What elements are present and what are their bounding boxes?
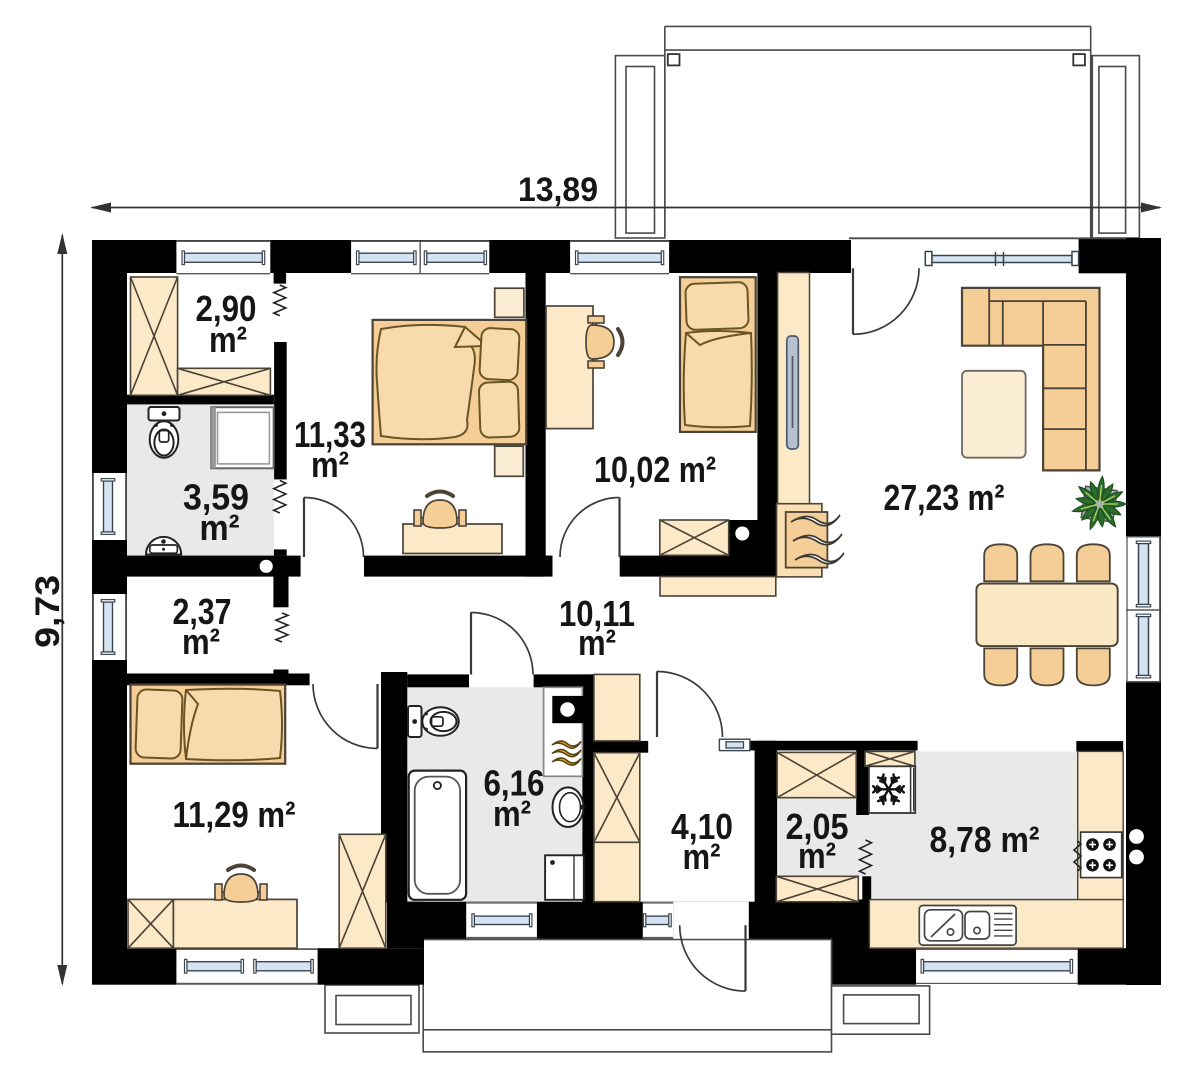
svg-text:27,23 m²: 27,23 m² [884, 477, 1005, 518]
svg-text:9,73: 9,73 [29, 575, 67, 648]
svg-text:11,29 m²: 11,29 m² [173, 794, 296, 835]
svg-text:8,78 m²: 8,78 m² [930, 819, 1040, 860]
svg-text:m²: m² [798, 835, 836, 876]
svg-text:13,89: 13,89 [518, 171, 598, 209]
svg-text:m²: m² [200, 507, 240, 548]
svg-text:m²: m² [311, 444, 349, 485]
svg-text:m²: m² [578, 622, 616, 663]
svg-text:m²: m² [683, 836, 721, 877]
svg-text:m²: m² [209, 319, 247, 360]
svg-text:10,02 m²: 10,02 m² [594, 449, 716, 490]
svg-text:m²: m² [182, 621, 220, 662]
svg-text:m²: m² [493, 793, 531, 834]
